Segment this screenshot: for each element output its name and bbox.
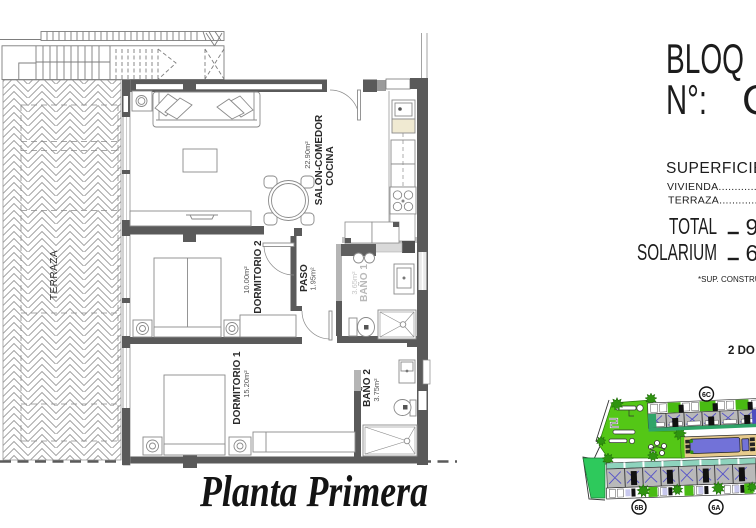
- svg-text:DORMITORIO 2: DORMITORIO 2: [253, 240, 264, 314]
- svg-text:10.00m²: 10.00m²: [242, 266, 251, 294]
- svg-text:6A: 6A: [712, 505, 721, 512]
- svg-text:Planta Primera: Planta Primera: [199, 467, 428, 516]
- svg-text:N°:: N°:: [666, 76, 707, 123]
- svg-text:TERRAZA....................: TERRAZA....................: [668, 195, 756, 207]
- svg-text:SALON-COMEDOR: SALON-COMEDOR: [314, 114, 325, 205]
- svg-text:6C: 6C: [702, 392, 711, 399]
- svg-text:C: C: [742, 76, 756, 123]
- svg-text:BLOQ: BLOQ: [666, 35, 744, 82]
- svg-text:COCINA: COCINA: [325, 146, 336, 185]
- svg-text:15.20m²: 15.20m²: [242, 370, 251, 398]
- svg-text:9: 9: [746, 214, 756, 240]
- svg-text:SUPERFICIES: SUPERFICIES: [666, 160, 756, 177]
- svg-text:1.95m²: 1.95m²: [309, 267, 318, 291]
- svg-text:TERRAZA: TERRAZA: [49, 250, 60, 300]
- svg-text:22.90m²: 22.90m²: [303, 141, 312, 169]
- svg-text:2 DO: 2 DO: [728, 345, 755, 357]
- svg-text:TOTAL: TOTAL: [669, 213, 717, 239]
- svg-text:*SUP. CONSTRU: *SUP. CONSTRU: [698, 275, 756, 284]
- svg-text:SOLARIUM: SOLARIUM: [637, 239, 717, 265]
- svg-text:VIVIENDA....................: VIVIENDA....................: [667, 181, 756, 193]
- svg-text:6B: 6B: [635, 505, 644, 512]
- svg-text:6: 6: [746, 240, 756, 266]
- svg-text:3.65m²: 3.65m²: [350, 271, 359, 295]
- svg-text:3.75m²: 3.75m²: [372, 378, 381, 402]
